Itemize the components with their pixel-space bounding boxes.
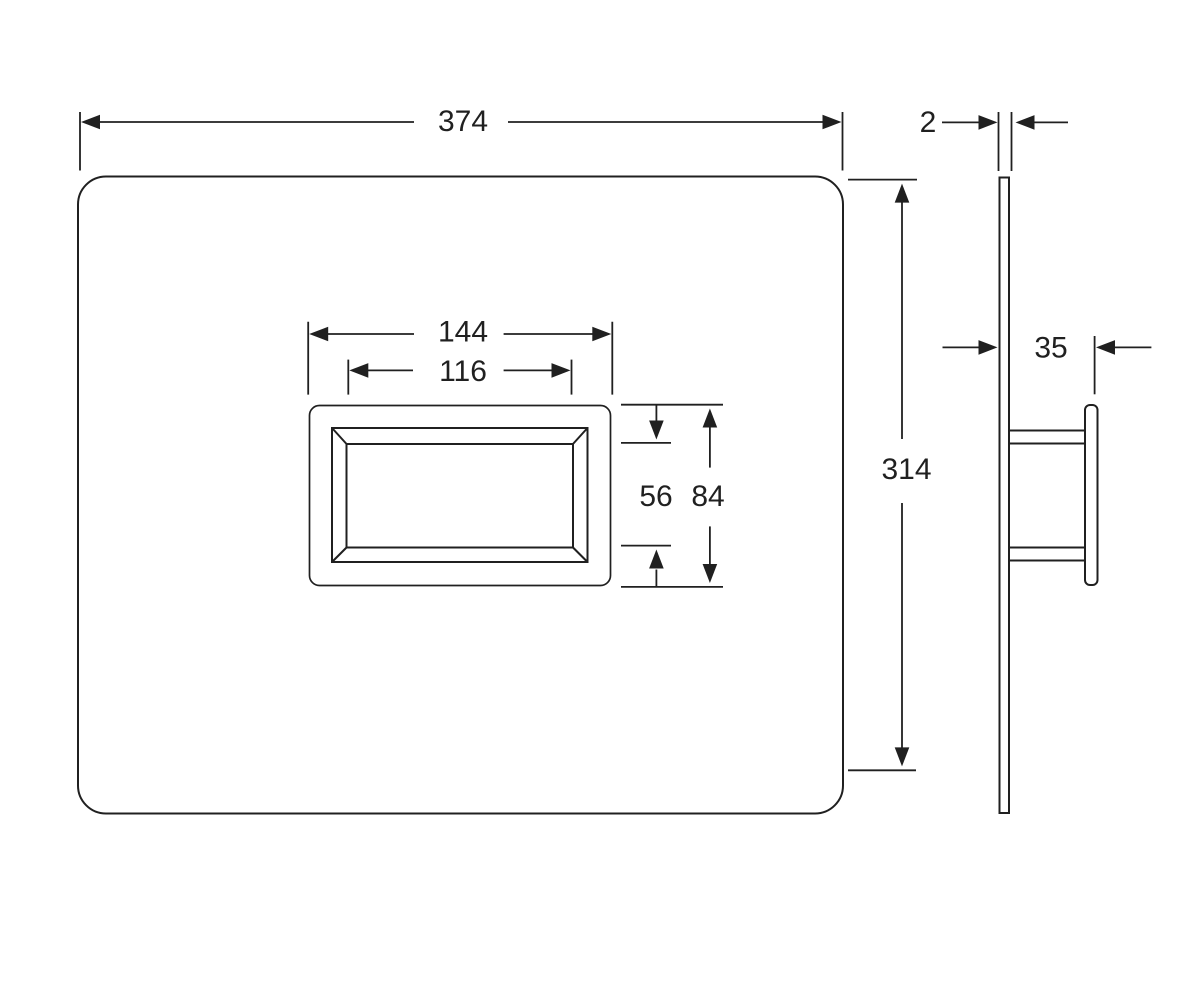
svg-text:144: 144 [438, 316, 488, 349]
svg-text:116: 116 [439, 355, 487, 388]
svg-text:56: 56 [639, 480, 672, 513]
svg-text:2: 2 [920, 106, 937, 139]
svg-text:314: 314 [881, 453, 931, 486]
svg-text:374: 374 [438, 105, 488, 138]
svg-text:35: 35 [1034, 331, 1067, 364]
svg-text:84: 84 [691, 480, 724, 513]
